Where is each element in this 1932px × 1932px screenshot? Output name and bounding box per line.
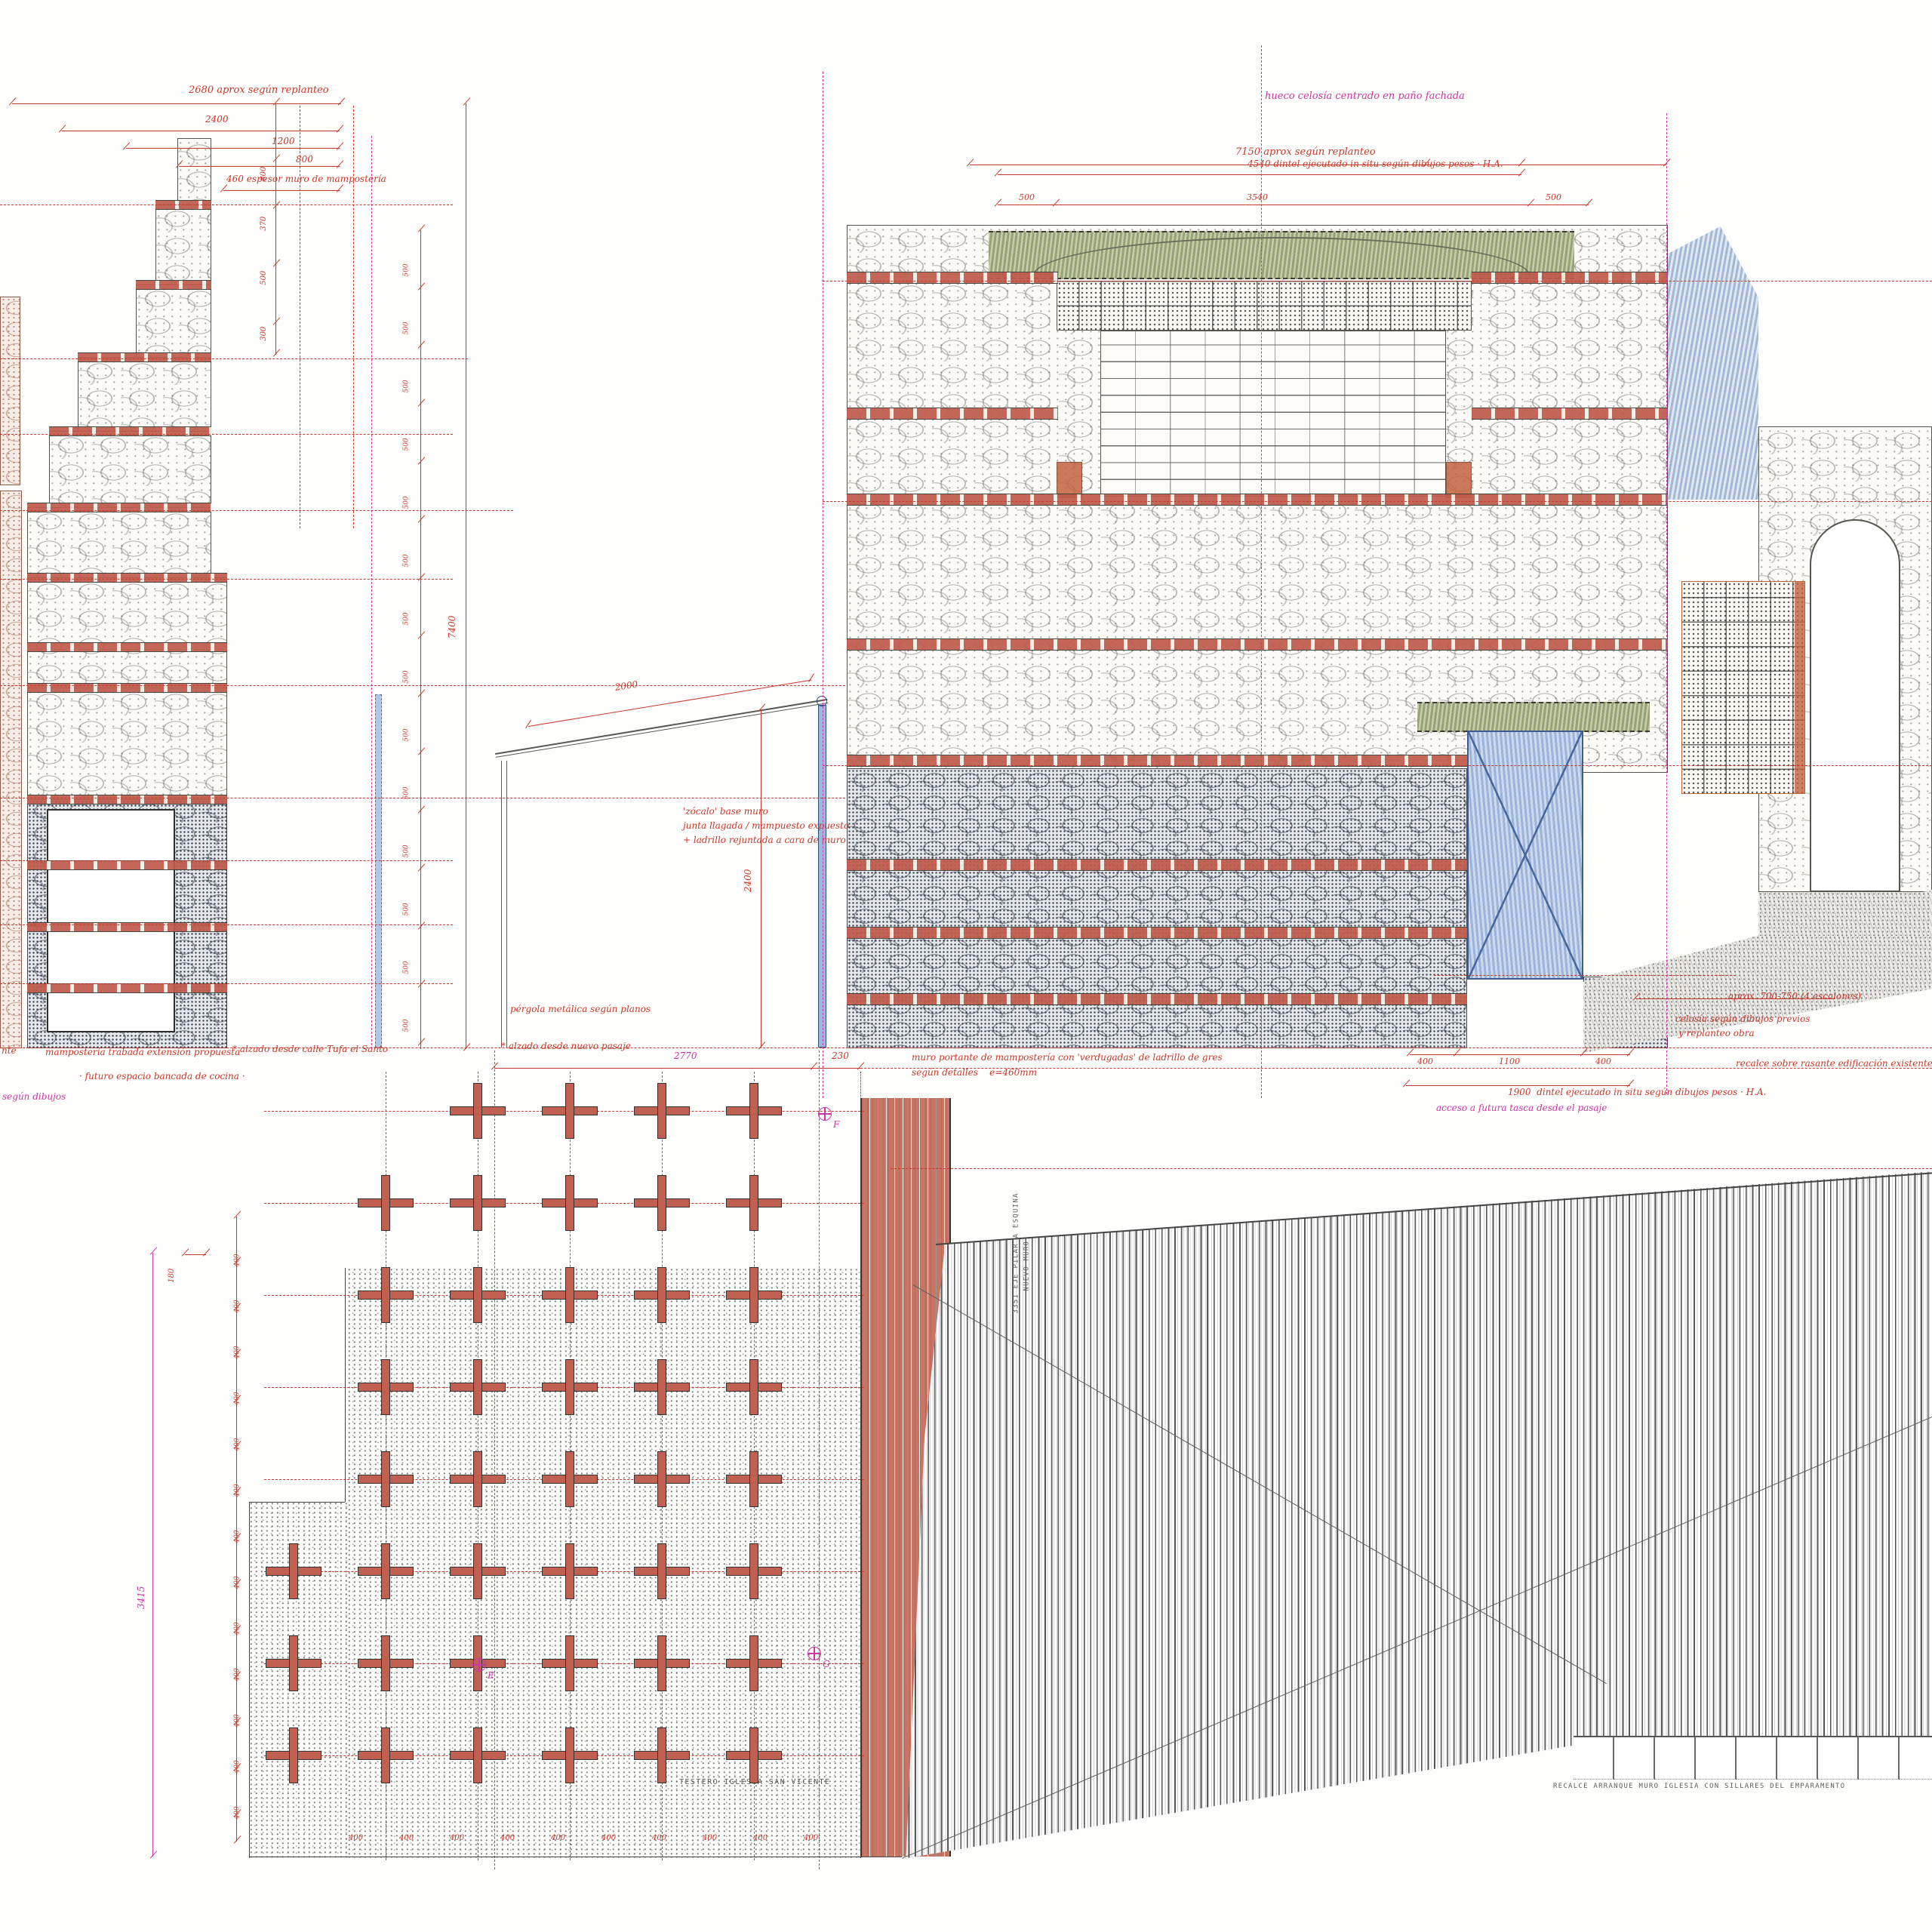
plan-cross-joint [542, 1635, 598, 1691]
dim-400-b: 400 [1595, 1057, 1611, 1067]
dim-500-chain: 500 [402, 321, 411, 334]
dim-400-bottom-chain: 400 [804, 1834, 818, 1843]
brick-course [847, 638, 1668, 651]
note-espesor: 460 espesor muro de mampostería [226, 174, 386, 184]
dimension-line [223, 190, 340, 191]
note-escalones: aprox. 700-750 (4 escalones) [1728, 991, 1861, 1001]
plan-cross-joint [450, 1175, 506, 1231]
brick-infill-window [1100, 331, 1446, 497]
dimension-line [185, 1254, 206, 1255]
plan-cross-joint [450, 1359, 506, 1415]
plan-cross-joint [726, 1359, 782, 1415]
construction-line [860, 1072, 861, 1858]
construction-line [249, 1857, 902, 1857]
dimension-line [970, 165, 1666, 165]
facade-existing-base-masonry [847, 768, 1467, 1048]
plan-cross-joint [542, 1175, 598, 1231]
dim-400-bottom-chain: 400 [450, 1834, 464, 1843]
dim-500-chain: 500 [402, 1019, 411, 1032]
plan-cross-joint [634, 1451, 690, 1507]
dimension-line [126, 148, 340, 149]
plan-cross-joint [266, 1727, 321, 1783]
note-mamposteria: mampostería trabada extensión propuesta [45, 1047, 240, 1057]
dimension-line [528, 680, 811, 727]
plan-cross-joint [726, 1635, 782, 1691]
pergola-post-left [501, 761, 507, 1048]
brick-course [27, 860, 227, 870]
pergola-joint-circle [817, 696, 827, 706]
dim-2770: 2770 [674, 1051, 697, 1061]
plan-cross-joint [542, 1083, 598, 1139]
dim-800-v: 800 [260, 167, 269, 181]
brick-course [27, 795, 227, 804]
dim-2400-v: 2400 [743, 869, 753, 893]
celosia-perforated-band [1057, 281, 1472, 331]
dim-400-bottom-chain: 400 [601, 1834, 616, 1843]
construction-line [0, 685, 845, 686]
dim-500-chain: 500 [402, 554, 411, 567]
plan-cross-joint [726, 1083, 782, 1139]
right-ground-band [1758, 892, 1932, 936]
construction-line [371, 136, 372, 1049]
plan-cross-joint [450, 1451, 506, 1507]
construction-line [0, 434, 453, 435]
note-celosia-2: y replanteo obra [1678, 1028, 1755, 1038]
dimension-line [494, 1068, 860, 1069]
dim-300-v: 300 [260, 327, 269, 341]
construction-line [0, 798, 845, 798]
dim-500-l: 500 [1019, 193, 1035, 203]
dimension-line [275, 103, 276, 355]
blue-door [1467, 731, 1583, 980]
brick-course [136, 280, 211, 290]
brick-course [27, 983, 227, 993]
dim-3540: 3540 [1247, 193, 1268, 203]
dimension-line [12, 103, 341, 104]
dim-500-chain: 500 [402, 844, 411, 857]
construction-line [823, 72, 823, 1098]
plan-cross-joint [450, 1543, 506, 1599]
note-celosia-1: celosía según dibujos previos [1675, 1014, 1810, 1024]
stepped-wall-block-8 [27, 688, 227, 802]
stepped-wall-block-4 [78, 357, 211, 434]
note-alzado-calle: * alzado desde calle Tufa el Santo [232, 1044, 388, 1054]
arched-opening [1810, 519, 1900, 892]
ashlar-course-sillares [1574, 1736, 1932, 1780]
construction-line [823, 765, 1932, 766]
construction-line [345, 1268, 346, 1502]
dim-400-bottom-chain: 400 [500, 1834, 515, 1843]
setting-out-marker [808, 1647, 821, 1660]
brick-course [847, 494, 1668, 506]
dim-370-v: 370 [260, 217, 269, 231]
plan-cross-joint [634, 1359, 690, 1415]
architectural-sketch-sheet: 2680 aprox según replanteo24001200800460… [0, 0, 1932, 1932]
dimension-line [62, 131, 340, 131]
brick-course [1472, 408, 1668, 420]
plan-cross-joint [726, 1727, 782, 1783]
dim-180: 180 [168, 1269, 177, 1283]
note-segun-dibujos: según dibujos [2, 1091, 66, 1102]
plan-cross-joint [450, 1727, 506, 1783]
dimension-line [998, 174, 1521, 175]
dim-500-chain: 500 [402, 728, 411, 741]
setting-out-marker-label: G [823, 1659, 830, 1669]
construction-line [823, 1068, 1932, 1069]
stepped-wall-block-5 [49, 431, 211, 510]
note-zocalo-3: + ladrillo rejuntada a cara de muro [683, 835, 846, 845]
label-eje-pilar: 3351 EJE PILAR A ESQUINA [1012, 1192, 1020, 1313]
plan-cross-joint [634, 1083, 690, 1139]
plan-cross-joint [542, 1543, 598, 1599]
dim-500-chain: 500 [402, 438, 411, 451]
left-edge-wall-fragment-b [0, 491, 22, 1048]
dim-500-chain: 500 [402, 380, 411, 392]
brick-course [27, 573, 227, 583]
brick-course [27, 922, 227, 932]
setting-out-marker-label: F [833, 1119, 839, 1130]
brick-course [27, 503, 211, 512]
dim-500-r: 500 [1546, 193, 1561, 203]
construction-line [1261, 45, 1262, 1098]
construction-line [0, 983, 453, 984]
note-dintel-1900: 1900 dintel ejecutado in situ según dibu… [1508, 1087, 1766, 1097]
dim-500-chain: 500 [402, 263, 411, 276]
plan-cross-joint [358, 1451, 414, 1507]
brick-jamb-right [1446, 462, 1472, 498]
dim-500-chain: 500 [402, 903, 411, 915]
plan-cross-joint [542, 1451, 598, 1507]
plan-cross-joint [726, 1451, 782, 1507]
stepped-wall-block-7 [27, 577, 227, 691]
dimension-line [179, 166, 340, 167]
note-zocalo-2: junta llagada / mampuesto expuesto [683, 820, 849, 831]
brick-course [847, 993, 1467, 1005]
plan-cross-joint [266, 1543, 321, 1599]
note-muro-portante-2: según detalles e=460mm [912, 1067, 1037, 1078]
brick-course [847, 408, 1058, 420]
brick-course [847, 272, 1058, 284]
construction-line [891, 1168, 1932, 1169]
setting-out-marker [472, 1658, 486, 1672]
dim-400-a: 400 [1417, 1057, 1433, 1067]
dim-500-chain: 500 [402, 496, 411, 509]
door-green-lintel [1417, 702, 1650, 732]
stepped-wall-block-3 [136, 285, 211, 360]
plan-cross-joint [634, 1635, 690, 1691]
note-muro-portante: muro portante de mampostería con 'verdug… [912, 1052, 1223, 1063]
left-edge-wall-fragment-a [0, 297, 20, 485]
dimension-line [761, 709, 761, 1048]
plan-cross-joint [450, 1083, 506, 1139]
construction-line [1434, 975, 1736, 976]
stepped-wall-block-2 [155, 205, 211, 288]
dim-800: 800 [296, 154, 313, 165]
dim-400-bottom-chain: 400 [349, 1834, 363, 1843]
construction-line [0, 205, 453, 205]
plan-cross-joint [726, 1175, 782, 1231]
construction-line [0, 860, 453, 861]
plan-cross-joint [542, 1359, 598, 1415]
construction-line [0, 924, 453, 925]
dim-500-chain: 500 [402, 612, 411, 625]
construction-line [823, 281, 1932, 281]
brick-course [78, 352, 211, 362]
dim-7400: 7400 [447, 616, 457, 639]
label-recalce-arranque: RECALCE ARRANQUE MURO IGLESIA CON SILLAR… [1553, 1783, 1845, 1791]
plan-cross-joint [358, 1543, 414, 1599]
plan-cross-joint [634, 1543, 690, 1599]
brick-course [27, 683, 227, 693]
dimension-line [420, 230, 421, 1049]
construction-line [1666, 113, 1667, 1094]
dim-230: 230 [832, 1051, 849, 1061]
dim-400-bottom-chain: 400 [703, 1834, 717, 1843]
plan-cross-joint [450, 1267, 506, 1323]
right-celosia-brick-edge [1795, 581, 1805, 794]
construction-line [0, 1048, 1932, 1048]
plan-cross-joint [358, 1267, 414, 1323]
construction-line [0, 358, 468, 359]
dim-500-v: 500 [260, 271, 269, 285]
dim-500-chain: 500 [402, 670, 411, 683]
proposed-opening-door [47, 809, 175, 1032]
dimension-line [152, 1253, 153, 1857]
dim-400-bottom-chain: 400 [551, 1834, 565, 1843]
brick-course [27, 642, 227, 652]
note-acceso: acceso a futura tasca desde el pasaje [1436, 1103, 1607, 1113]
construction-line [249, 1502, 345, 1503]
plan-cross-joint [726, 1543, 782, 1599]
dim-400-bottom-chain: 400 [753, 1834, 768, 1843]
plan-gravel-area [347, 1268, 860, 1858]
dimension-line [1406, 1085, 1630, 1086]
note-hueco: hueco celosía centrado en paño fachada [1265, 91, 1465, 102]
dim-3415: 3415 [136, 1586, 146, 1610]
dim-400-bottom-chain: 400 [652, 1834, 666, 1843]
stepped-wall-block-6 [27, 507, 211, 580]
setting-out-marker-label: E [488, 1670, 494, 1681]
note-zocalo-1: 'zócalo' base muro [683, 806, 768, 817]
brick-course [49, 426, 211, 436]
plan-cross-joint [634, 1267, 690, 1323]
note-pergola: pérgola metálica según planos [510, 1004, 651, 1014]
plan-cross-joint [634, 1175, 690, 1231]
construction-line [249, 1502, 250, 1858]
note-alzado-pasaje: * alzado desde nuevo pasaje [501, 1041, 631, 1051]
dim-1100: 1100 [1499, 1057, 1520, 1067]
plan-cross-joint [634, 1727, 690, 1783]
construction-line [353, 106, 354, 528]
plan-cross-joint [358, 1175, 414, 1231]
plan-cross-joint [266, 1635, 321, 1691]
setting-out-marker [818, 1107, 832, 1121]
construction-line [0, 510, 513, 511]
plan-cross-joint [542, 1727, 598, 1783]
plan-cross-joint [358, 1727, 414, 1783]
dimension-line [1410, 1054, 1630, 1055]
dim-400-bottom-chain: 400 [399, 1834, 414, 1843]
dimension-line [998, 205, 1589, 205]
construction-line [0, 579, 453, 580]
right-celosia-block [1681, 581, 1805, 794]
brick-course [1472, 272, 1668, 284]
dim-total-top-left: 2680 aprox según replanteo [189, 85, 329, 96]
construction-line [819, 1051, 820, 1869]
label-eje-pilar-2: NUEVO MURO [1023, 1241, 1031, 1291]
dim-7150: 7150 aprox según replanteo [1235, 146, 1376, 158]
plan-cross-joint [726, 1267, 782, 1323]
plan-cross-joint [358, 1635, 414, 1691]
steel-column-existing [375, 694, 382, 1048]
dimension-line [466, 103, 466, 1049]
brick-course [847, 859, 1467, 871]
dim-2400: 2400 [205, 114, 229, 125]
construction-line [300, 106, 300, 528]
brick-course [847, 927, 1467, 939]
plan-cross-joint [358, 1359, 414, 1415]
brick-jamb-left [1057, 462, 1082, 498]
construction-line [823, 501, 1932, 502]
right-gable-wall [1668, 226, 1758, 500]
dim-500-chain: 500 [402, 961, 411, 974]
note-bancada: · futuro espacio bancada de cocina · [79, 1071, 245, 1081]
pergola-roof-slope [495, 699, 828, 758]
dimension-line [236, 1217, 237, 1841]
plan-cross-joint [542, 1267, 598, 1323]
